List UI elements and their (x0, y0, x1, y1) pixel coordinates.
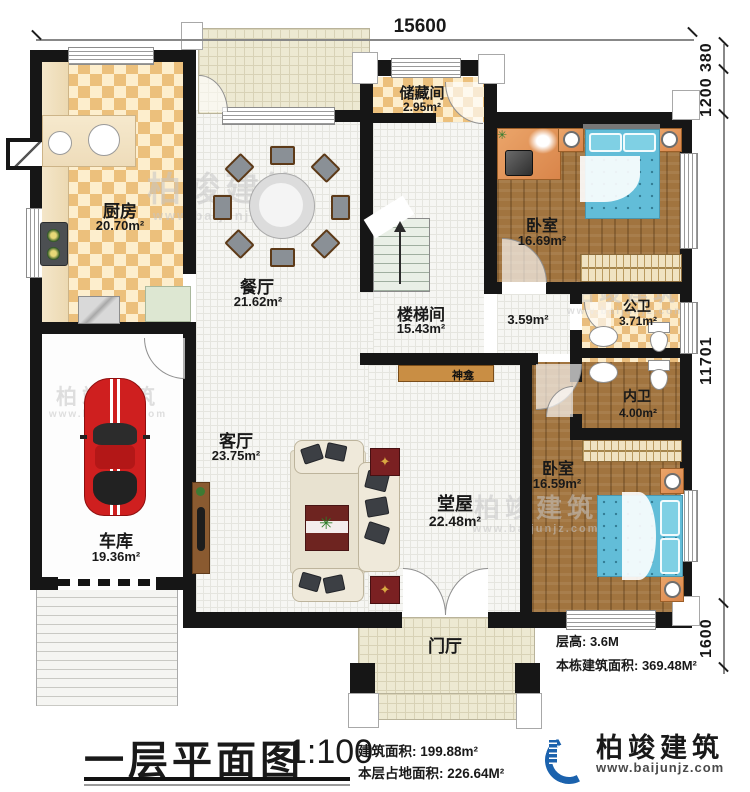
dimension-top-label: 15600 (375, 16, 465, 38)
window (68, 47, 154, 65)
dimension-right-11701: 11701 (698, 318, 716, 404)
room-area-living: 23.75m² (203, 448, 269, 463)
column (352, 52, 378, 84)
tv-cabinet (192, 482, 210, 574)
wall (570, 294, 582, 304)
wall (488, 612, 566, 628)
coffee-table: ✳ (305, 505, 349, 551)
room-area-stairwell: 15.43m² (381, 321, 461, 336)
wall (484, 127, 497, 282)
wall (183, 612, 402, 628)
column (181, 22, 203, 50)
foyer-stoop (377, 693, 518, 720)
plant-icon: ✳ (497, 128, 507, 142)
room-area-main-hall: 22.48m² (415, 513, 495, 529)
title-underline (84, 777, 350, 781)
dishwasher (78, 296, 120, 324)
dimension-right-380: 380 (698, 40, 716, 74)
wall (360, 353, 538, 365)
room-label-foyer: 门厅 (415, 632, 475, 657)
note-floor-height: 层高: 3.6M (556, 631, 706, 650)
driveway-steps (36, 590, 178, 706)
wall (360, 122, 373, 292)
clock-icon (664, 473, 681, 490)
room-label-shrine: 神龛 (438, 367, 488, 383)
bedroom1-bed (585, 129, 660, 219)
stair-arrow-head (394, 221, 406, 232)
kitchen-counter (42, 62, 69, 322)
room-area-kitchen: 20.70m² (80, 218, 160, 233)
side-table: ✦ (370, 576, 400, 604)
dimension-line-right (723, 44, 725, 674)
dining-chair (213, 195, 232, 220)
dining-chair (270, 146, 295, 165)
clock-icon (664, 581, 681, 598)
dimension-tick (687, 27, 698, 38)
bedroom2-wardrobe (582, 440, 682, 462)
porch-column (515, 663, 540, 693)
floor-plan: 柏竣建筑 www.baijunjz.com 柏竣建筑 www.baijunjz.… (0, 0, 750, 792)
stairhall-floor-ext (360, 292, 373, 353)
stove (40, 222, 68, 266)
room-area-dining: 21.62m² (213, 294, 303, 309)
dimension-right-1200: 1200 (698, 74, 716, 120)
title-underline-2 (84, 784, 350, 786)
column (478, 54, 505, 84)
desk-lamp-glow (528, 128, 558, 154)
bedroom2-bed (597, 495, 683, 577)
computer-monitor (505, 150, 533, 176)
window (566, 610, 656, 630)
wall (30, 577, 58, 590)
title-area-line1: 建筑面积: 199.88m² (358, 740, 538, 760)
room-area-public-bath: 3.71m² (608, 314, 668, 328)
porch-column-base (516, 693, 542, 729)
wall (570, 428, 692, 440)
clock-icon (661, 131, 678, 148)
brand-logo-icon (543, 722, 591, 778)
clock-icon (563, 131, 580, 148)
room-area-private-bath: 4.00m² (608, 406, 668, 420)
stair-arrow-line (399, 230, 401, 284)
room-area-storage: 2.95m² (372, 100, 472, 114)
wall (30, 334, 42, 577)
room-area-garage: 19.36m² (83, 549, 149, 564)
title-area-line2: 本层占地面积: 226.64M² (358, 762, 558, 782)
window (680, 153, 698, 249)
wall (183, 50, 196, 274)
porch-column (350, 663, 375, 693)
sink (589, 326, 618, 347)
window (680, 302, 698, 354)
garage-door-opening (58, 579, 156, 586)
sink (589, 362, 618, 383)
brand-url: www.baijunjz.com (596, 760, 746, 775)
plan-scale: 1:100 (288, 733, 358, 772)
bedroom1-wardrobe (580, 254, 682, 282)
window (391, 58, 461, 78)
sofa-cushion (365, 496, 390, 518)
dining-table-top (259, 183, 303, 227)
window (222, 107, 335, 125)
kitchen-sink (88, 124, 120, 156)
kitchen-sink (48, 131, 72, 155)
room-label-public-bath: 公卫 (612, 296, 662, 316)
room-label-private-bath: 内卫 (612, 386, 662, 406)
wall (546, 282, 692, 294)
wall (582, 348, 692, 358)
wall (484, 282, 502, 294)
wall (30, 50, 42, 208)
column (672, 90, 700, 120)
room-area-hallway: 3.59m² (500, 312, 556, 327)
wall (570, 330, 582, 354)
dimension-right-1600: 1600 (698, 610, 716, 666)
dining-chair (270, 248, 295, 267)
car (84, 378, 146, 516)
room-area-bedroom1: 16.69m² (507, 233, 577, 248)
dining-chair (331, 195, 350, 220)
porch-column-base (348, 693, 379, 728)
dimension-line-top (36, 39, 694, 41)
side-table: ✦ (370, 448, 400, 476)
kitchen-cart (145, 286, 191, 322)
room-area-bedroom2: 16.59m² (524, 476, 590, 491)
